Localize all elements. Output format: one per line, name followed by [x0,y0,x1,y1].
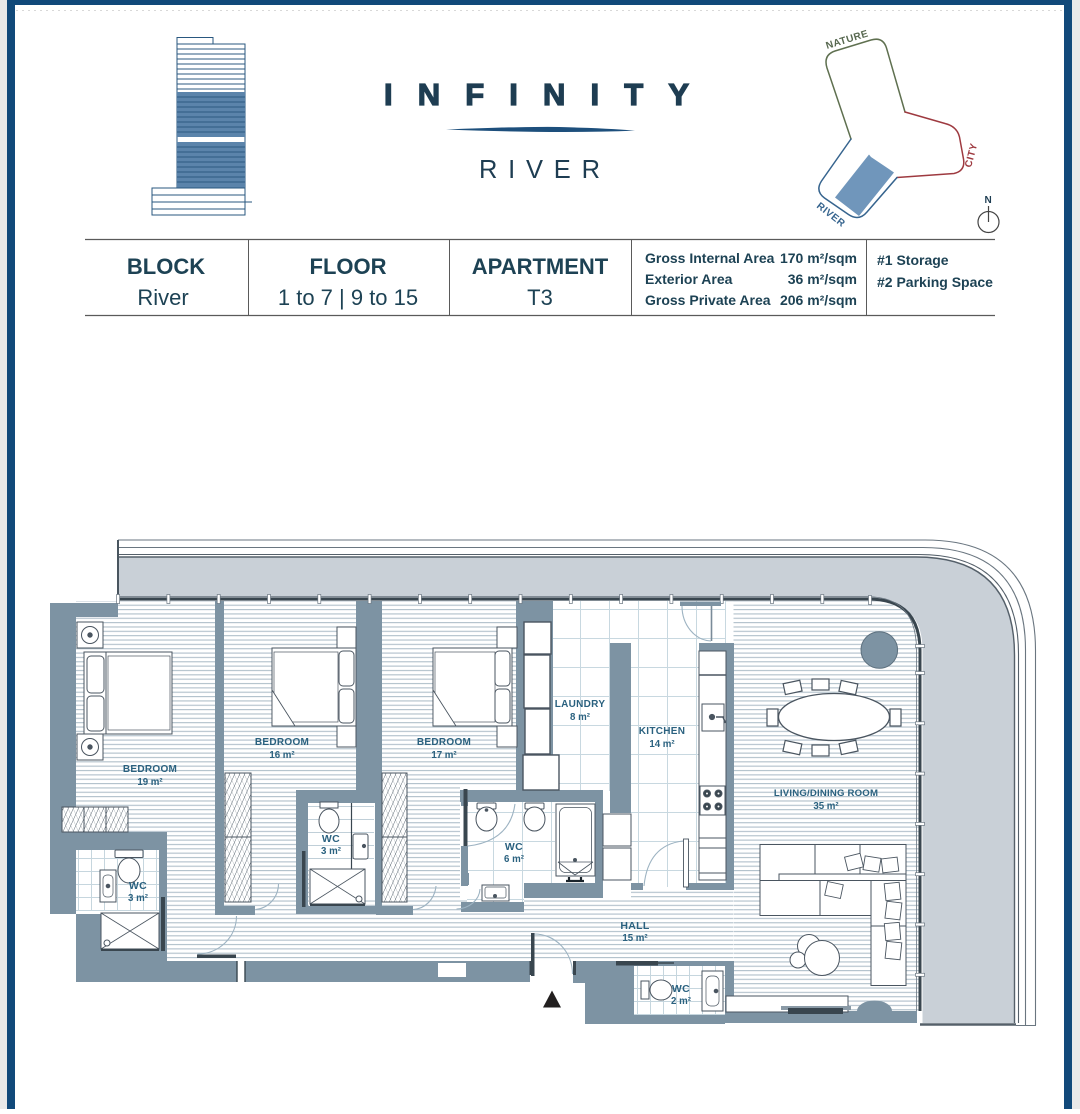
svg-text:LIVING/DINING ROOM: LIVING/DINING ROOM [774,788,878,799]
svg-text:15 m²: 15 m² [622,933,648,944]
svg-text:APARTMENT: APARTMENT [472,254,609,279]
svg-text:2 m²: 2 m² [671,996,692,1007]
svg-text:1 to 7 | 9 to 15: 1 to 7 | 9 to 15 [278,285,418,310]
svg-text:LAUNDRY: LAUNDRY [555,699,606,710]
svg-text:16 m²: 16 m² [269,750,295,761]
svg-text:HALL: HALL [620,920,649,932]
svg-text:Exterior Area: Exterior Area [645,271,733,287]
svg-text:T3: T3 [527,285,553,310]
svg-text:#1 Storage: #1 Storage [877,252,949,268]
svg-text:17 m²: 17 m² [431,750,457,761]
svg-text:BEDROOM: BEDROOM [417,737,471,748]
svg-text:Gross Internal Area: Gross Internal Area [645,250,775,266]
svg-text:WC: WC [505,841,523,853]
svg-text:14 m²: 14 m² [649,739,675,750]
svg-text:WC: WC [672,983,690,995]
svg-text:#2 Parking Space: #2 Parking Space [877,274,993,290]
svg-text:35 m²: 35 m² [813,801,839,812]
svg-text:KITCHEN: KITCHEN [639,726,686,737]
svg-text:6 m²: 6 m² [504,854,525,865]
svg-text:WC: WC [129,880,147,892]
svg-text:36 m²/sqm: 36 m²/sqm [788,271,857,287]
svg-text:3 m²: 3 m² [321,846,342,857]
svg-text:River: River [137,285,188,310]
svg-text:N: N [985,195,992,206]
svg-text:Gross Private Area: Gross Private Area [645,292,771,308]
svg-text:BLOCK: BLOCK [127,254,205,279]
svg-text:19 m²: 19 m² [137,777,163,788]
svg-text:8 m²: 8 m² [570,712,591,723]
svg-text:206 m²/sqm: 206 m²/sqm [780,292,857,308]
svg-text:BEDROOM: BEDROOM [123,764,177,775]
svg-text:BEDROOM: BEDROOM [255,737,309,748]
svg-text:170 m²/sqm: 170 m²/sqm [780,250,857,266]
svg-text:WC: WC [322,833,340,845]
svg-text:RIVER: RIVER [479,156,600,184]
svg-text:FLOOR: FLOOR [310,254,387,279]
svg-text:3 m²: 3 m² [128,893,149,904]
